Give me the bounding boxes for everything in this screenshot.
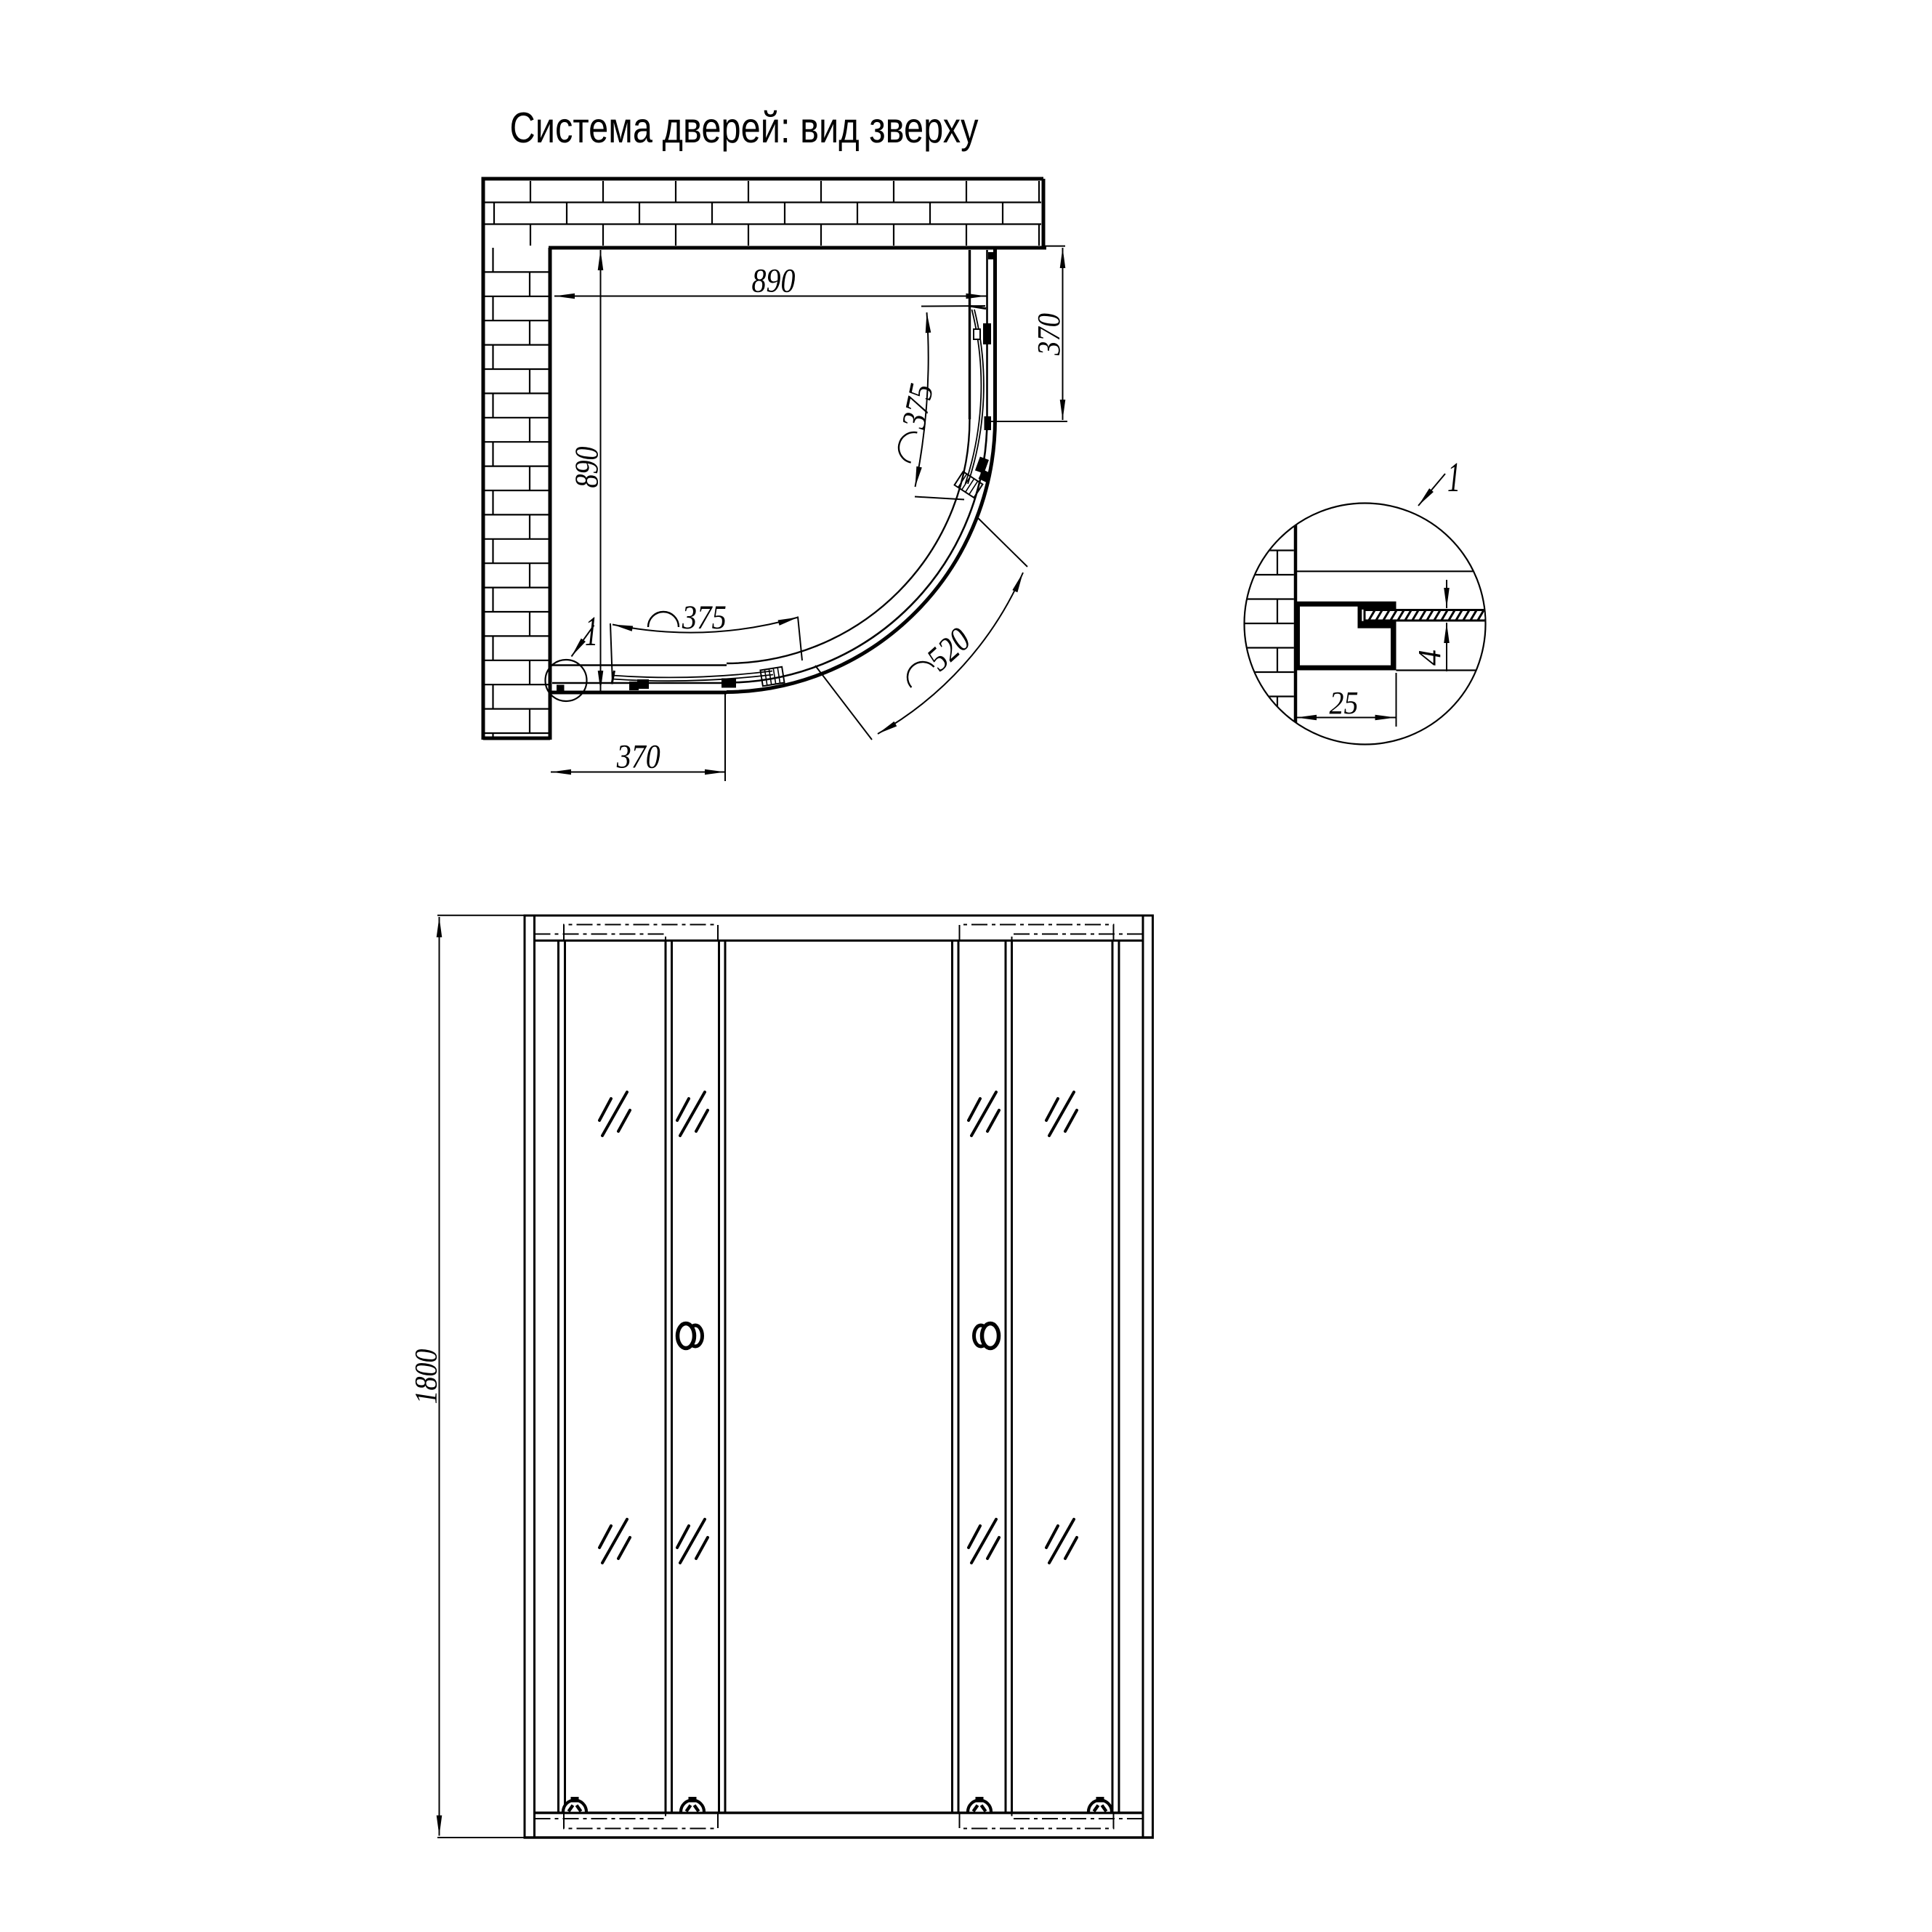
svg-text:1: 1 [1447,453,1460,501]
svg-text:4: 4 [1412,650,1447,666]
svg-text:25: 25 [1330,685,1359,721]
svg-text:1800: 1800 [410,1349,444,1404]
svg-text:370: 370 [616,738,660,776]
svg-text:375: 375 [682,599,727,636]
svg-text:Система дверей: вид зверху: Система дверей: вид зверху [510,104,979,152]
svg-text:890: 890 [569,447,605,488]
svg-text:1: 1 [585,607,598,655]
svg-text:370: 370 [1031,313,1067,356]
svg-text:890: 890 [752,262,796,300]
